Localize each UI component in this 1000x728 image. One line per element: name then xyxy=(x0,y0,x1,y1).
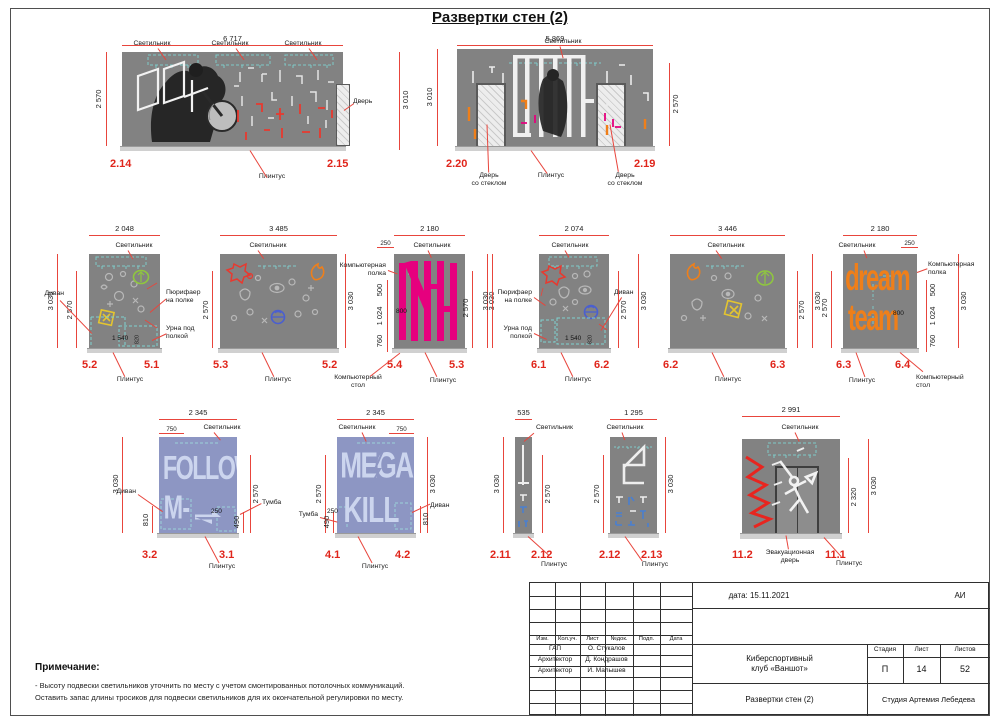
wall-id: 6.1 xyxy=(531,359,546,371)
dim-height-in: 2 570 xyxy=(619,288,629,332)
dim-line xyxy=(603,455,604,533)
grid-line xyxy=(530,690,692,691)
dim-width: 2 345 xyxy=(337,406,414,420)
name-stukalov: О. Стукалов xyxy=(580,644,633,655)
note-title: Примечание: xyxy=(35,662,100,673)
dim-height-left: 3 030 xyxy=(492,462,502,506)
label-lamp: Светильник xyxy=(197,424,247,432)
label-glass-door: Дверь со стеклом xyxy=(602,172,648,188)
dim-height-left: 2 570 xyxy=(820,286,830,330)
wall-4-1-4-2: MEGA KILL xyxy=(337,437,414,533)
label-evac-door: Эвакуационная дверь xyxy=(762,549,818,565)
dim-offset-value: 750 xyxy=(389,426,414,433)
dim-inner: 250 xyxy=(327,508,338,515)
label-lamp: Светильник xyxy=(538,38,588,46)
plinth-strip xyxy=(513,533,534,538)
label-glass-door: Дверь со стеклом xyxy=(466,172,512,188)
dim-width-value: 2 180 xyxy=(394,224,465,233)
dim-offset: 750 xyxy=(159,425,184,434)
label-plinth: Плинтус xyxy=(106,376,154,384)
label-lamp: Светильник xyxy=(600,424,650,432)
plinth-strip xyxy=(608,533,659,538)
label-lamp: Светильник xyxy=(243,242,293,250)
label-lamp: Светильник xyxy=(278,40,328,48)
label-lamp: Светильник xyxy=(701,242,751,250)
wall-id: 2.15 xyxy=(327,158,348,170)
art-text-kill: KILL xyxy=(344,490,400,530)
wall-id: 3.1 xyxy=(219,549,234,561)
dim-offset-value: 750 xyxy=(159,426,184,433)
dim-line xyxy=(333,512,334,533)
dim-line xyxy=(503,437,504,533)
grid-line xyxy=(530,622,692,623)
plinth-strip xyxy=(157,533,239,538)
wall-art-dream-team: dream team xyxy=(843,254,917,348)
date-cell: дата: 15.11.2021 xyxy=(692,583,826,608)
wall-id: 6.2 xyxy=(663,359,678,371)
dim-offset-value: 250 xyxy=(901,240,918,247)
dim-line xyxy=(387,280,388,352)
grid-line xyxy=(530,677,692,678)
dim-width-value: 2 074 xyxy=(539,224,609,233)
dim-line xyxy=(472,271,473,348)
dim-width-value: 3 446 xyxy=(670,224,785,233)
plinth-strip xyxy=(392,348,467,353)
dim-seg-760: 760 xyxy=(375,319,385,363)
wall-id: 4.1 xyxy=(325,549,340,561)
wall-art-stickers xyxy=(670,254,785,348)
grid-line xyxy=(530,596,692,597)
wall-id: 5.3 xyxy=(449,359,464,371)
label-plinth: Плинтус xyxy=(836,560,862,568)
label-urn: Урна под полкой xyxy=(496,325,532,341)
dim-width: 3 485 xyxy=(220,222,337,236)
label-plinth: Плинтус xyxy=(351,563,399,571)
studio-name: Студия Артемия Лебедева xyxy=(867,683,990,716)
dim-width: 2 048 xyxy=(89,222,160,236)
plinth-strip xyxy=(740,533,842,539)
wall-art-stickers xyxy=(220,254,337,348)
wall-art-graffiti-axe xyxy=(122,52,343,146)
label-lamp: Светильник xyxy=(407,242,457,250)
wall-art-running-man xyxy=(742,439,840,533)
dim-width: 2 074 xyxy=(539,222,609,236)
label-sofa: Диван xyxy=(108,488,136,496)
col-header-koluch: Кол.уч. xyxy=(555,635,580,644)
wall-id: 5.3 xyxy=(213,359,228,371)
dim-height-out: 3 030 xyxy=(869,464,879,508)
dim-width-value: 2 345 xyxy=(159,408,237,417)
col-header-podp: Подп. xyxy=(633,635,660,644)
wall-id: 5.2 xyxy=(322,359,337,371)
wall-id: 2.12 xyxy=(599,549,620,561)
dim-inner-height: 820 xyxy=(588,331,595,349)
sheet-value: 14 xyxy=(903,657,940,683)
col-header-izm: Изм. xyxy=(530,635,555,644)
label-plinth: Плинтус xyxy=(554,376,602,384)
wall-id: 3.2 xyxy=(142,549,157,561)
dim-width: 2 180 xyxy=(394,222,465,236)
dim-inner: 250 xyxy=(211,508,222,515)
label-computer-desk: Компьютерный стол xyxy=(330,374,386,390)
label-plinth: Плинтус xyxy=(631,561,679,569)
wall-art-mega-kill: MEGA KILL xyxy=(337,437,414,533)
dim-width: 2 345 xyxy=(159,406,237,420)
wall-art-stickers xyxy=(539,254,609,348)
dim-height-out: 3 030 xyxy=(46,279,56,323)
wall-2-12-2-13 xyxy=(610,437,657,533)
plinth-strip xyxy=(455,146,655,151)
wall-3-2-3-1: FOLLOW M- xyxy=(159,437,237,533)
dim-height-left: 2 570 xyxy=(201,288,211,332)
wall-id: 2.11 xyxy=(490,549,511,561)
dim-offset: 750 xyxy=(389,425,414,434)
role-gap: ГАП xyxy=(530,644,580,655)
label-computer-shelf: Компьютерная полка xyxy=(330,262,386,278)
dim-line xyxy=(243,512,244,533)
dim-height-right: 2 570 xyxy=(543,472,553,516)
dim-height-left: 2 570 xyxy=(592,472,602,516)
col-header-data: Дата xyxy=(660,635,692,644)
dim-tumba-height: 490 xyxy=(322,500,332,544)
dim-line xyxy=(926,280,927,352)
wall-5-3-5-2 xyxy=(220,254,337,348)
wall-art-narrow-glyphs xyxy=(515,437,532,533)
wall-id: 5.2 xyxy=(82,359,97,371)
dim-inner: 800 xyxy=(893,310,904,317)
grid-line xyxy=(530,703,692,704)
dim-height-right: 3 010 xyxy=(401,78,411,122)
label-lamp: Светильник xyxy=(205,40,255,48)
role-architect: Архитектор xyxy=(530,655,580,666)
dim-inner-width: 1 540 xyxy=(112,335,128,342)
plinth-strip xyxy=(841,348,919,353)
dim-line xyxy=(57,254,58,348)
wall-id: 6.3 xyxy=(770,359,785,371)
dim-height-out-left: 3 030 xyxy=(481,279,491,323)
label-plinth: Плинтус xyxy=(527,172,575,180)
dim-height-in: 2 570 xyxy=(797,288,807,332)
grid-line xyxy=(530,609,692,610)
dim-tumba-height: 490 xyxy=(232,500,242,544)
plinth-strip xyxy=(668,348,787,353)
wall-id: 2.20 xyxy=(446,158,467,170)
dim-line xyxy=(437,49,438,146)
label-lamp: Светильник xyxy=(109,242,159,250)
wall-6-3-6-4: dream team xyxy=(843,254,917,348)
page-title: Развертки стен (2) xyxy=(0,9,1000,26)
wall-id: 2.12 xyxy=(531,549,552,561)
note-line-1: - Высоту подвески светильников уточнить … xyxy=(35,681,404,690)
dim-sofa-height: 810 xyxy=(141,498,151,542)
sheets-header: Листов xyxy=(940,644,990,657)
dim-offset: 250 xyxy=(901,239,918,248)
label-plinth: Плинтус xyxy=(248,173,296,181)
wall-id: 2.14 xyxy=(110,158,131,170)
label-computer-shelf: Компьютерная полка xyxy=(928,261,974,277)
label-plinth: Плинтус xyxy=(541,561,567,569)
wall-art-magenta-letters xyxy=(394,254,465,348)
code-cell: АИ xyxy=(930,583,990,608)
dim-width-value: 2 991 xyxy=(742,405,840,414)
wall-2-14-2-15 xyxy=(122,52,343,146)
role-architect: Архитектор xyxy=(530,666,580,677)
wall-11-2-11-1 xyxy=(742,439,840,533)
sheets-value: 52 xyxy=(940,657,990,683)
dim-height-right: 3 030 xyxy=(346,279,356,323)
stage-value: П xyxy=(867,657,903,683)
art-text-dream: dream xyxy=(845,257,909,299)
label-tumba: Тумба xyxy=(290,511,318,519)
dim-offset-value: 250 xyxy=(377,240,394,247)
dim-width: 2 991 xyxy=(742,403,840,417)
label-purifier: Пюрифаер на полке xyxy=(166,289,201,305)
col-header-ndoc: №док. xyxy=(605,635,633,644)
dim-height-in: 2 320 xyxy=(849,475,859,519)
label-lamp: Светильник xyxy=(832,242,882,250)
label-lamp: Светильник xyxy=(332,424,382,432)
dim-width-value: 535 xyxy=(515,408,532,417)
dim-line xyxy=(831,271,832,348)
dim-height-left: 3 010 xyxy=(425,75,435,119)
wall-id: 11.2 xyxy=(732,549,753,561)
grid-line xyxy=(660,583,661,716)
dim-height-right: 2 570 xyxy=(251,472,261,516)
col-header-list: Лист xyxy=(580,635,605,644)
label-door: Дверь xyxy=(353,98,372,106)
name-kondrashov: Д. Кондрашов xyxy=(580,655,633,666)
dim-height-left: 2 570 xyxy=(94,77,104,121)
dim-width-value: 3 485 xyxy=(220,224,337,233)
wall-id: 2.19 xyxy=(634,158,655,170)
sheet-header: Лист xyxy=(903,644,940,657)
label-computer-desk: Компьютерный стол xyxy=(916,374,964,390)
plinth-strip xyxy=(335,533,416,538)
dim-line xyxy=(399,52,400,150)
dim-height-left: 3 030 xyxy=(111,462,121,506)
dim-height-in: 2 570 xyxy=(461,286,471,330)
dim-width: 2 180 xyxy=(843,222,917,236)
dim-line xyxy=(106,52,107,146)
label-lamp: Светильник xyxy=(775,424,825,432)
label-tumba: Тумба xyxy=(262,499,281,507)
dim-sofa-height: 810 xyxy=(421,497,431,541)
grid-line xyxy=(633,583,634,716)
label-plinth: Плинтус xyxy=(198,563,246,571)
dim-inner: 800 xyxy=(396,308,407,315)
plinth-strip xyxy=(537,348,611,353)
dim-line xyxy=(492,254,493,348)
doc-name: Развертки стен (2) xyxy=(692,683,867,716)
stage-header: Стадия xyxy=(867,644,903,657)
wall-id: 4.2 xyxy=(395,549,410,561)
wall-art-glyphs xyxy=(610,437,657,533)
label-plinth: Плинтус xyxy=(704,376,752,384)
dim-inner-width: 1 540 xyxy=(565,335,581,342)
wall-6-2-6-3 xyxy=(670,254,785,348)
title-block: Изм. Кол.уч. Лист №док. Подп. Дата ГАП О… xyxy=(529,582,989,715)
dim-height-out-right: 3 030 xyxy=(639,279,649,323)
label-plinth: Плинтус xyxy=(254,376,302,384)
label-lamp: Светильник xyxy=(127,40,177,48)
plinth-strip xyxy=(218,348,339,353)
dim-seg-760: 760 xyxy=(928,319,938,363)
wall-id: 6.3 xyxy=(836,359,851,371)
wall-id: 6.4 xyxy=(895,359,910,371)
label-plinth: Плинтус xyxy=(838,377,886,385)
dim-line xyxy=(122,437,123,533)
wall-5-4-5-3 xyxy=(394,254,465,348)
dim-width: 3 446 xyxy=(670,222,785,236)
wall-2-11-2-12 xyxy=(515,437,532,533)
project-name: Киберспортивный клуб «Ваншот» xyxy=(692,644,867,683)
dim-width: 1 295 xyxy=(610,406,657,420)
dim-height-right: 3 030 xyxy=(666,462,676,506)
dim-width-value: 1 295 xyxy=(610,408,657,417)
dim-width-value: 2 345 xyxy=(337,408,414,417)
dim-width-value: 2 180 xyxy=(843,224,917,233)
label-sofa: Диван xyxy=(430,502,449,510)
wall-5-2-5-1 xyxy=(89,254,160,348)
dim-width: 535 xyxy=(515,406,532,420)
dim-line xyxy=(76,271,77,348)
dim-line xyxy=(669,63,670,146)
label-sofa: Диван xyxy=(30,290,64,298)
name-malyshev: И. Малышев xyxy=(580,666,633,677)
wall-6-1-6-2 xyxy=(539,254,609,348)
dim-inner-height: 820 xyxy=(135,331,142,349)
dim-width-value: 2 048 xyxy=(89,224,160,233)
wall-art-stickers xyxy=(89,254,160,348)
dim-height-right: 2 570 xyxy=(671,82,681,126)
label-lamp: Светильник xyxy=(536,424,573,432)
label-purifier: Пюрифаер на полке xyxy=(496,289,532,305)
art-text-me: M- xyxy=(164,490,190,527)
wall-art-follow-me: FOLLOW M- xyxy=(159,437,237,533)
plinth-strip xyxy=(87,348,162,353)
door-right-edge xyxy=(336,84,350,146)
label-plinth: Плинтус xyxy=(419,377,467,385)
dim-line xyxy=(152,506,153,533)
label-urn: Урна под полкой xyxy=(166,325,195,341)
wall-id: 5.1 xyxy=(144,359,159,371)
art-text-follow: FOLLOW xyxy=(163,450,237,487)
wall-id: 6.2 xyxy=(594,359,609,371)
dim-line xyxy=(212,271,213,348)
art-text-team: team xyxy=(848,297,898,339)
label-lamp: Светильник xyxy=(545,242,595,250)
note-line-2: Оставить запас длины тросиков для подвес… xyxy=(35,693,403,702)
wall-id: 2.13 xyxy=(641,549,662,561)
dim-offset: 250 xyxy=(377,239,394,248)
dim-height-out: 3 030 xyxy=(959,279,969,323)
plinth-strip xyxy=(120,146,346,151)
grid-line xyxy=(692,608,990,609)
